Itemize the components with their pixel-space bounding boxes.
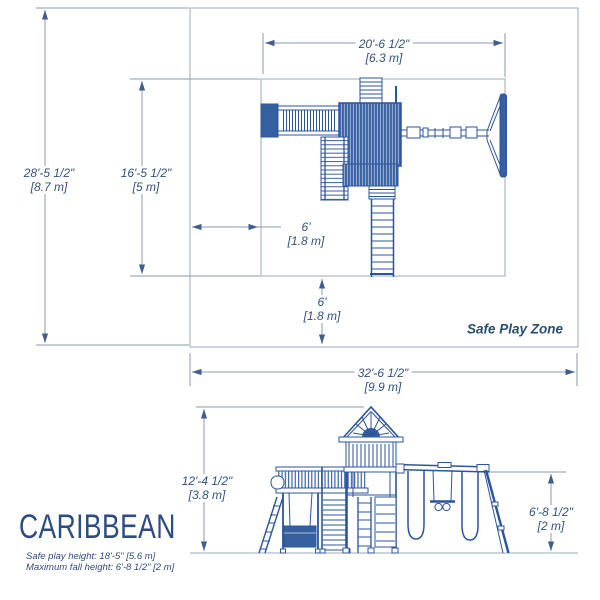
safe-play-zone-label: Safe Play Zone (467, 322, 563, 337)
dim-zone-width-imperial: 20'-6 1/2" (359, 37, 410, 51)
dim-zone-depth-metric: [5 m] (121, 180, 172, 194)
elevation-view-drawing (259, 407, 509, 553)
plan-lower-deck (343, 164, 398, 186)
safe-play-height-note: Safe play height: 18'-5" [5.6 m] (26, 551, 174, 562)
plan-swing-beam (401, 127, 489, 138)
height-notes: Safe play height: 18'-5" [5.6 m] Maximum… (26, 551, 174, 573)
elev-aframe-leg (486, 470, 509, 553)
elev-trapeze (430, 470, 455, 511)
dim-swing-beam-height-metric: [2 m] (529, 519, 573, 533)
dim-zone-width-metric: [6.3 m] (359, 51, 410, 65)
dim-elevation-height-metric: [3.8 m] (182, 488, 233, 502)
elev-access-ladder (259, 497, 283, 553)
dim-zone-depth-imperial: 16'-5 1/2" (121, 166, 172, 180)
elev-belt-swing-2 (462, 471, 478, 540)
dim-side-clearance: 6' [1.8 m] (285, 220, 328, 248)
elev-box-swing (284, 493, 316, 547)
dim-swing-beam-height: 6'-8 1/2" [2 m] (526, 505, 576, 533)
plan-lower-ladder (369, 186, 395, 277)
elev-slide-end (271, 476, 284, 489)
dim-bottom-clearance-metric: [1.8 m] (304, 309, 341, 323)
dim-zone-width: 20'-6 1/2" [6.3 m] (356, 37, 413, 65)
plan-slide (261, 104, 339, 137)
dim-elevation-height: 12'-4 1/2" [3.8 m] (179, 474, 236, 502)
dim-zone-depth: 16'-5 1/2" [5 m] (118, 166, 175, 194)
plan-top-ladder (360, 78, 382, 104)
dim-swing-beam-height-imperial: 6'-8 1/2" (529, 505, 573, 519)
dim-overall-width-imperial: 32'-6 1/2" (358, 366, 409, 380)
dim-overall-width: 32'-6 1/2" [9.9 m] (355, 366, 412, 394)
dim-bottom-clearance-imperial: 6' (304, 295, 341, 309)
dim-side-clearance-metric: [1.8 m] (288, 234, 325, 248)
product-title: CARIBBEAN (19, 508, 176, 546)
dim-bottom-clearance: 6' [1.8 m] (301, 295, 344, 323)
elev-belt-swing-1 (408, 471, 424, 539)
max-fall-height-note: Maximum fall height: 6'-8 1/2" [2 m] (26, 562, 174, 573)
elev-swings (408, 470, 478, 540)
dim-overall-width-metric: [9.9 m] (358, 380, 409, 394)
dim-elevation-height-imperial: 12'-4 1/2" (182, 474, 233, 488)
blueprint-page: 28'-5 1/2" [8.7 m] 16'-5 1/2" [5 m] 20'-… (0, 0, 600, 600)
plan-swing-aframe (487, 94, 507, 177)
dim-overall-depth-metric: [8.7 m] (24, 180, 75, 194)
dim-side-clearance-imperial: 6' (288, 220, 325, 234)
dim-overall-depth: 28'-5 1/2" [8.7 m] (21, 166, 78, 194)
dim-overall-depth-imperial: 28'-5 1/2" (24, 166, 75, 180)
